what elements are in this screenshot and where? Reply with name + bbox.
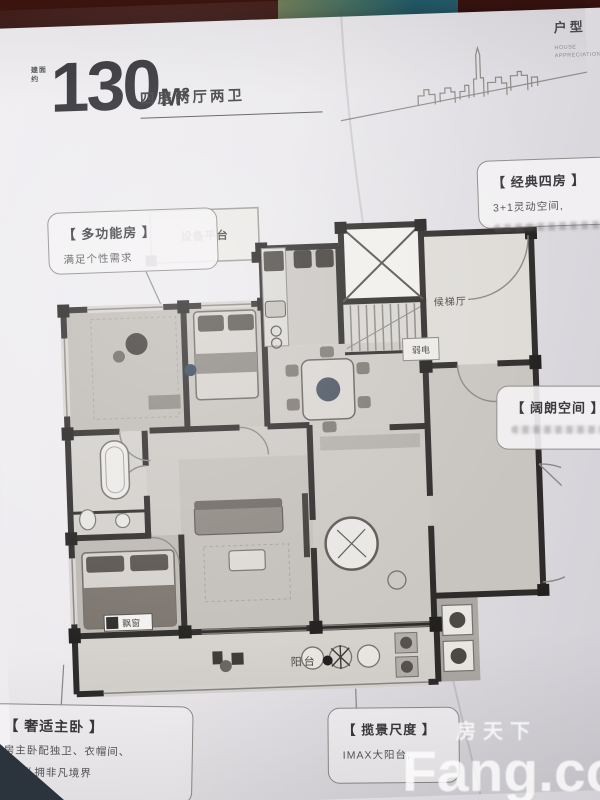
callout-classic-title: 【 经典四房 】 <box>492 168 600 192</box>
bay-window-stamp: 飘窗 <box>104 614 153 632</box>
callout-classic-line1: 3+1灵动空间, <box>493 196 600 216</box>
city-skyline-illustration <box>338 44 588 121</box>
callout-multifunction-title: 【 多功能房 】 <box>62 220 203 244</box>
watermark-en: Fang.com <box>402 744 600 800</box>
elevator-shaft <box>341 224 424 302</box>
callout-multifunction-line1: 满足个性需求 <box>63 248 203 268</box>
callout-master-title: 【 奢适主卧 】 <box>4 715 178 738</box>
brochure-paper: 建面 约 130 M² 四房两厅两卫 户型 HOUSE APPRECIATION <box>0 6 600 800</box>
weak-electric-label: 弱电 <box>412 344 430 356</box>
callout-spacious-space: 【 阔朗空间 】 <box>496 386 600 450</box>
brochure-content: 建面 约 130 M² 四房两厅两卫 户型 HOUSE APPRECIATION <box>0 0 600 800</box>
bay-window-label: 飘窗 <box>122 617 140 629</box>
callout-multifunction-room: 【 多功能房 】 满足个性需求 <box>47 207 219 275</box>
callout-classic-four-rooms: 【 经典四房 】 3+1灵动空间, <box>476 155 600 229</box>
callout-master-line1: 房主卧配独卫、衣帽间、 <box>4 742 178 760</box>
photo-of-floorplan-brochure: 建面 约 130 M² 四房两厅两卫 户型 HOUSE APPRECIATION <box>0 0 600 800</box>
elevator-hall-label: 候梯厅 <box>434 294 467 308</box>
balcony-label: 阳台 <box>290 654 316 669</box>
watermark-cn: 房天下 <box>456 722 600 742</box>
watermark: 房天下 Fang.com <box>402 722 600 800</box>
callout-spacious-title: 【 阔朗空间 】 <box>511 398 600 417</box>
callout-spacious-blurred-line <box>511 426 600 434</box>
